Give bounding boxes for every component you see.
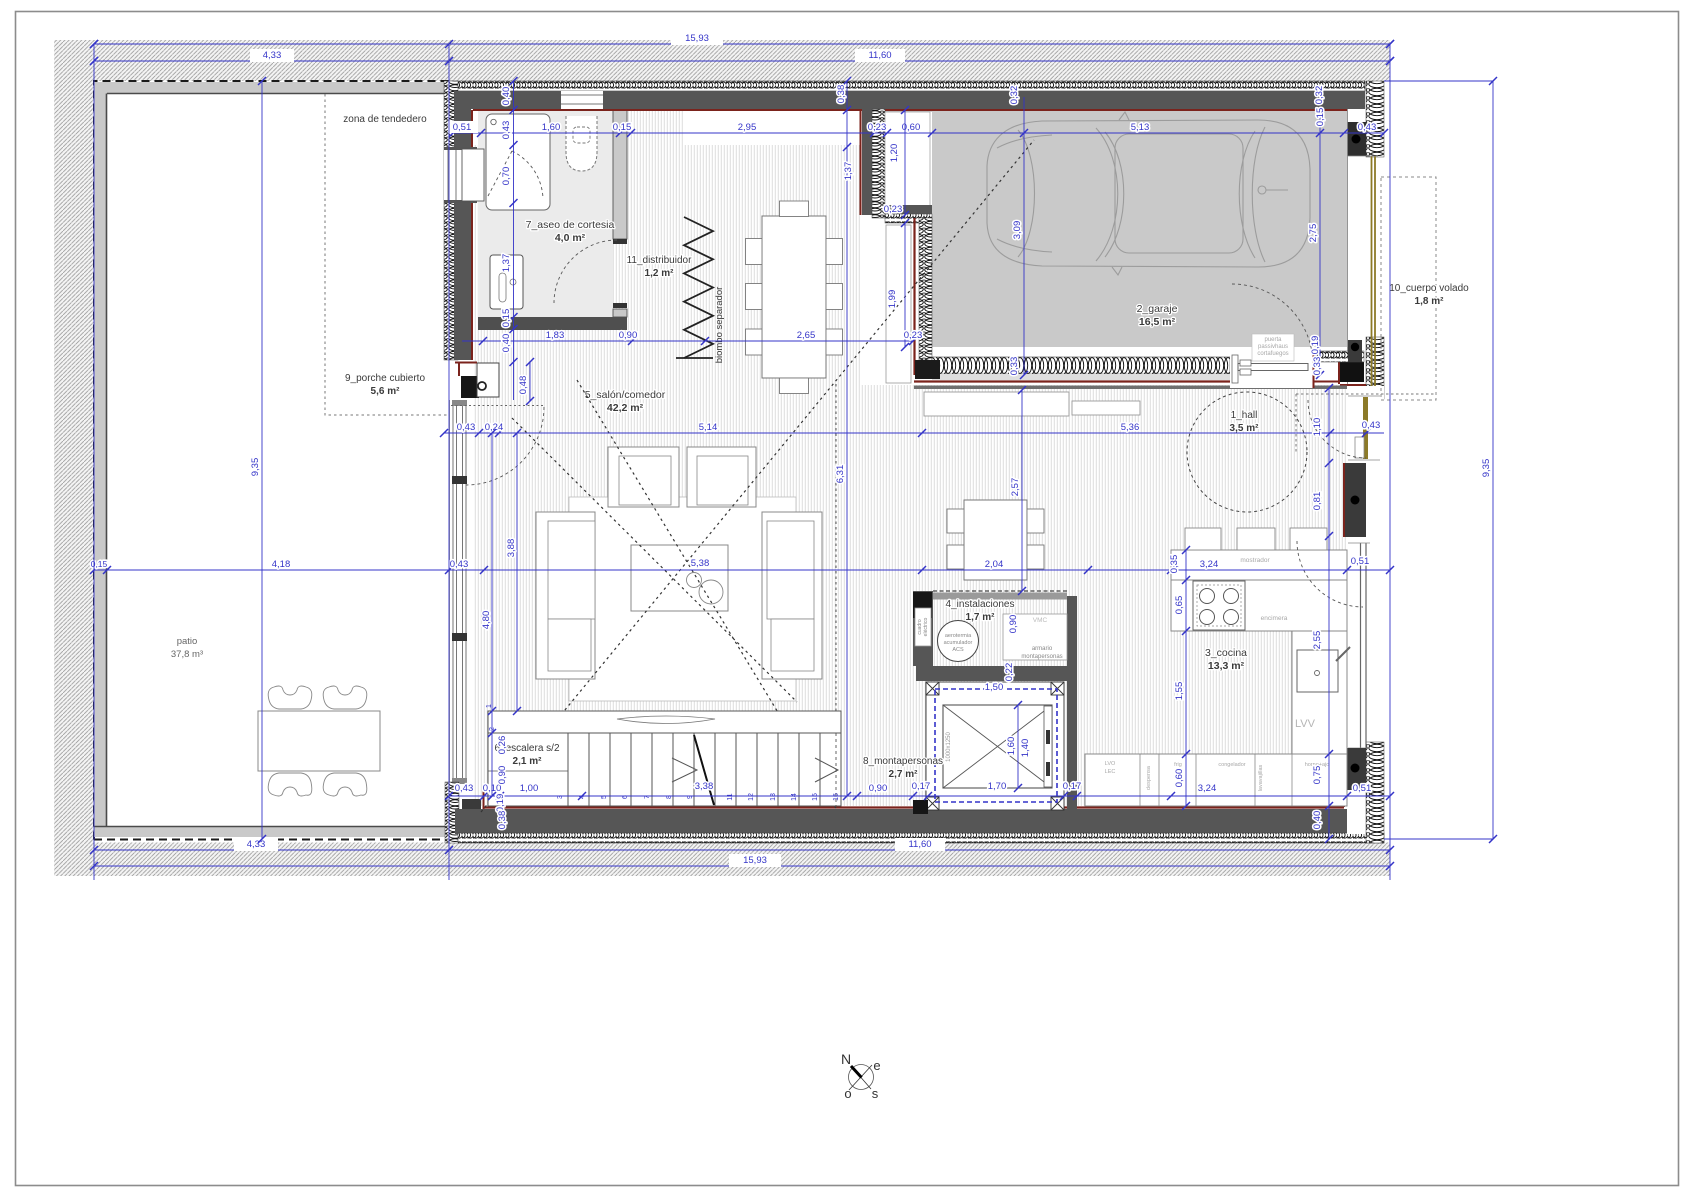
svg-text:2,7 m²: 2,7 m² bbox=[889, 769, 919, 780]
svg-text:3,5 m²: 3,5 m² bbox=[1230, 423, 1260, 434]
svg-text:0,60: 0,60 bbox=[902, 122, 921, 133]
svg-text:15: 15 bbox=[812, 793, 819, 801]
svg-text:5,38: 5,38 bbox=[691, 558, 710, 569]
svg-text:5_salón/comedor: 5_salón/comedor bbox=[585, 389, 666, 401]
svg-text:10_cuerpo volado: 10_cuerpo volado bbox=[1389, 283, 1469, 294]
svg-text:ACS: ACS bbox=[952, 647, 964, 653]
svg-text:0,43: 0,43 bbox=[1358, 122, 1377, 133]
svg-text:biombo separador: biombo separador bbox=[714, 287, 725, 364]
svg-text:8_montapersonas: 8_montapersonas bbox=[863, 756, 943, 767]
svg-text:0,51: 0,51 bbox=[453, 122, 472, 133]
svg-text:0,33: 0,33 bbox=[1009, 357, 1020, 376]
svg-text:2,95: 2,95 bbox=[738, 122, 757, 133]
svg-text:o: o bbox=[844, 1086, 851, 1101]
svg-text:N: N bbox=[841, 1051, 851, 1067]
svg-text:2,55: 2,55 bbox=[1312, 631, 1323, 650]
svg-text:13,3 m²: 13,3 m² bbox=[1208, 660, 1245, 672]
svg-text:2,1 m²: 2,1 m² bbox=[513, 756, 543, 767]
svg-text:1,2 m²: 1,2 m² bbox=[645, 268, 675, 279]
svg-text:11: 11 bbox=[727, 793, 734, 800]
svg-text:despensa: despensa bbox=[1146, 765, 1152, 790]
svg-text:montapersonas: montapersonas bbox=[1021, 654, 1062, 660]
svg-text:6,31: 6,31 bbox=[835, 465, 846, 484]
svg-text:0,75: 0,75 bbox=[1312, 766, 1323, 785]
svg-text:acumulador: acumulador bbox=[944, 640, 973, 646]
svg-text:congelador: congelador bbox=[1218, 762, 1245, 768]
svg-text:LVO: LVO bbox=[1105, 761, 1116, 767]
svg-text:5,36: 5,36 bbox=[1121, 422, 1140, 433]
svg-text:13: 13 bbox=[770, 793, 777, 801]
svg-text:0,51: 0,51 bbox=[1353, 783, 1372, 794]
svg-text:frig: frig bbox=[1174, 762, 1182, 768]
svg-text:1,8 m²: 1,8 m² bbox=[1415, 296, 1445, 307]
svg-text:0,51: 0,51 bbox=[1351, 556, 1370, 567]
svg-text:3_cocina: 3_cocina bbox=[1205, 647, 1247, 659]
svg-text:15,93: 15,93 bbox=[743, 855, 767, 866]
svg-text:LVV: LVV bbox=[1295, 718, 1316, 730]
svg-text:0,40: 0,40 bbox=[501, 87, 512, 106]
svg-text:9,35: 9,35 bbox=[1481, 459, 1492, 478]
svg-text:0,17: 0,17 bbox=[912, 781, 931, 792]
svg-text:1,50: 1,50 bbox=[985, 682, 1004, 693]
svg-text:LEC: LEC bbox=[1105, 769, 1116, 775]
svg-text:0,22: 0,22 bbox=[1004, 663, 1015, 682]
svg-text:4,33: 4,33 bbox=[263, 50, 282, 61]
svg-text:1,37: 1,37 bbox=[843, 162, 854, 181]
svg-text:4,0 m²: 4,0 m² bbox=[555, 232, 586, 244]
svg-text:5,13: 5,13 bbox=[1131, 122, 1150, 133]
svg-text:42,2 m²: 42,2 m² bbox=[607, 402, 644, 414]
svg-text:3,24: 3,24 bbox=[1200, 559, 1219, 570]
svg-text:0,15: 0,15 bbox=[1315, 108, 1326, 127]
svg-text:0,32: 0,32 bbox=[1009, 86, 1020, 105]
svg-text:1,20: 1,20 bbox=[889, 144, 900, 163]
svg-text:1,99: 1,99 bbox=[887, 290, 898, 309]
svg-text:0,48: 0,48 bbox=[518, 376, 529, 395]
svg-text:11,60: 11,60 bbox=[868, 50, 891, 61]
svg-text:0,38: 0,38 bbox=[836, 85, 847, 104]
svg-text:0,43: 0,43 bbox=[450, 559, 469, 570]
svg-text:0,43: 0,43 bbox=[1362, 420, 1381, 431]
svg-text:0,81: 0,81 bbox=[1312, 492, 1323, 511]
svg-text:0,90: 0,90 bbox=[619, 330, 638, 341]
svg-text:eléctrico: eléctrico bbox=[923, 617, 929, 636]
svg-text:encimera: encimera bbox=[1261, 615, 1288, 622]
svg-text:1,00: 1,00 bbox=[520, 783, 539, 794]
svg-text:4,33: 4,33 bbox=[247, 839, 266, 850]
svg-text:0,15: 0,15 bbox=[613, 122, 632, 133]
svg-text:0,23: 0,23 bbox=[868, 122, 887, 133]
svg-text:4_instalaciones: 4_instalaciones bbox=[946, 599, 1015, 610]
svg-text:0,43: 0,43 bbox=[501, 121, 512, 140]
svg-text:12: 12 bbox=[748, 793, 755, 801]
svg-text:0,65: 0,65 bbox=[1174, 596, 1185, 615]
svg-text:3,09: 3,09 bbox=[1012, 221, 1023, 240]
svg-text:11_distribuidor: 11_distribuidor bbox=[627, 255, 693, 266]
svg-text:3,88: 3,88 bbox=[506, 539, 517, 558]
svg-text:0,33: 0,33 bbox=[1312, 357, 1323, 376]
svg-text:0,90: 0,90 bbox=[497, 766, 508, 785]
svg-text:9_porche cubierto: 9_porche cubierto bbox=[345, 373, 425, 384]
svg-text:1,7 m²: 1,7 m² bbox=[966, 612, 996, 623]
svg-text:3,24: 3,24 bbox=[1198, 783, 1217, 794]
svg-text:0,17: 0,17 bbox=[1063, 781, 1082, 792]
svg-text:1,37: 1,37 bbox=[501, 254, 512, 273]
svg-text:2,75: 2,75 bbox=[1308, 224, 1319, 243]
svg-text:15,93: 15,93 bbox=[685, 33, 709, 44]
svg-text:0,19: 0,19 bbox=[495, 794, 506, 813]
svg-text:lavavajillas: lavavajillas bbox=[1258, 764, 1264, 791]
svg-text:16,5 m²: 16,5 m² bbox=[1139, 316, 1176, 328]
svg-text:9,35: 9,35 bbox=[250, 458, 261, 477]
svg-text:1,10: 1,10 bbox=[1312, 418, 1323, 437]
svg-text:5,14: 5,14 bbox=[699, 422, 718, 433]
svg-text:0,15: 0,15 bbox=[501, 309, 512, 328]
svg-text:37,8 m³: 37,8 m³ bbox=[171, 649, 203, 660]
svg-text:passivhaus: passivhaus bbox=[1258, 344, 1288, 350]
svg-text:3,38: 3,38 bbox=[695, 781, 714, 792]
svg-text:s: s bbox=[872, 1086, 879, 1101]
svg-text:patio: patio bbox=[177, 636, 198, 647]
svg-text:zona de tendedero: zona de tendedero bbox=[343, 114, 427, 125]
svg-text:0,90: 0,90 bbox=[869, 783, 888, 794]
svg-text:1,55: 1,55 bbox=[1174, 682, 1185, 701]
svg-text:0,70: 0,70 bbox=[501, 167, 512, 186]
svg-text:1,70: 1,70 bbox=[988, 781, 1007, 792]
svg-text:0,15: 0,15 bbox=[91, 559, 108, 569]
svg-text:0,35: 0,35 bbox=[1169, 555, 1180, 574]
svg-text:0,23: 0,23 bbox=[904, 330, 923, 341]
svg-text:0,38: 0,38 bbox=[497, 811, 508, 830]
svg-text:cortafuegos: cortafuegos bbox=[1257, 351, 1288, 357]
svg-text:0,32: 0,32 bbox=[1314, 86, 1325, 105]
svg-text:VMC: VMC bbox=[1033, 617, 1048, 624]
svg-text:0,90: 0,90 bbox=[1008, 615, 1019, 634]
svg-text:16: 16 bbox=[833, 793, 840, 801]
svg-text:puerta: puerta bbox=[1264, 337, 1282, 343]
svg-text:0,43: 0,43 bbox=[457, 422, 476, 433]
svg-text:4,80: 4,80 bbox=[481, 611, 492, 630]
svg-text:0,43: 0,43 bbox=[455, 783, 474, 794]
svg-text:0,26: 0,26 bbox=[497, 736, 508, 755]
svg-text:1,60: 1,60 bbox=[1006, 737, 1017, 756]
svg-text:14: 14 bbox=[791, 793, 798, 801]
svg-text:5,6 m²: 5,6 m² bbox=[371, 386, 401, 397]
svg-text:0,40: 0,40 bbox=[1312, 811, 1323, 830]
svg-text:1000x1250: 1000x1250 bbox=[946, 731, 952, 761]
svg-text:2,04: 2,04 bbox=[985, 559, 1004, 570]
svg-text:e: e bbox=[873, 1058, 880, 1073]
svg-text:7_aseo de cortesia: 7_aseo de cortesia bbox=[526, 219, 615, 231]
svg-text:aerotermia: aerotermia bbox=[945, 633, 972, 639]
svg-text:1,83: 1,83 bbox=[546, 330, 565, 341]
svg-text:1,60: 1,60 bbox=[542, 122, 561, 133]
svg-text:0,23: 0,23 bbox=[884, 204, 903, 215]
svg-text:11,60: 11,60 bbox=[908, 839, 931, 850]
svg-text:0,40: 0,40 bbox=[501, 334, 512, 353]
svg-text:2_garaje: 2_garaje bbox=[1137, 303, 1178, 315]
svg-text:0,19: 0,19 bbox=[1310, 336, 1321, 355]
svg-text:4,18: 4,18 bbox=[272, 559, 291, 570]
svg-text:mostrador: mostrador bbox=[1240, 557, 1270, 564]
svg-text:2,57: 2,57 bbox=[1010, 478, 1021, 497]
svg-text:1,40: 1,40 bbox=[1020, 739, 1031, 758]
svg-text:2,65: 2,65 bbox=[797, 330, 816, 341]
svg-text:armario: armario bbox=[1032, 646, 1053, 652]
svg-text:0,60: 0,60 bbox=[1174, 769, 1185, 788]
svg-text:1_hall: 1_hall bbox=[1231, 410, 1258, 421]
